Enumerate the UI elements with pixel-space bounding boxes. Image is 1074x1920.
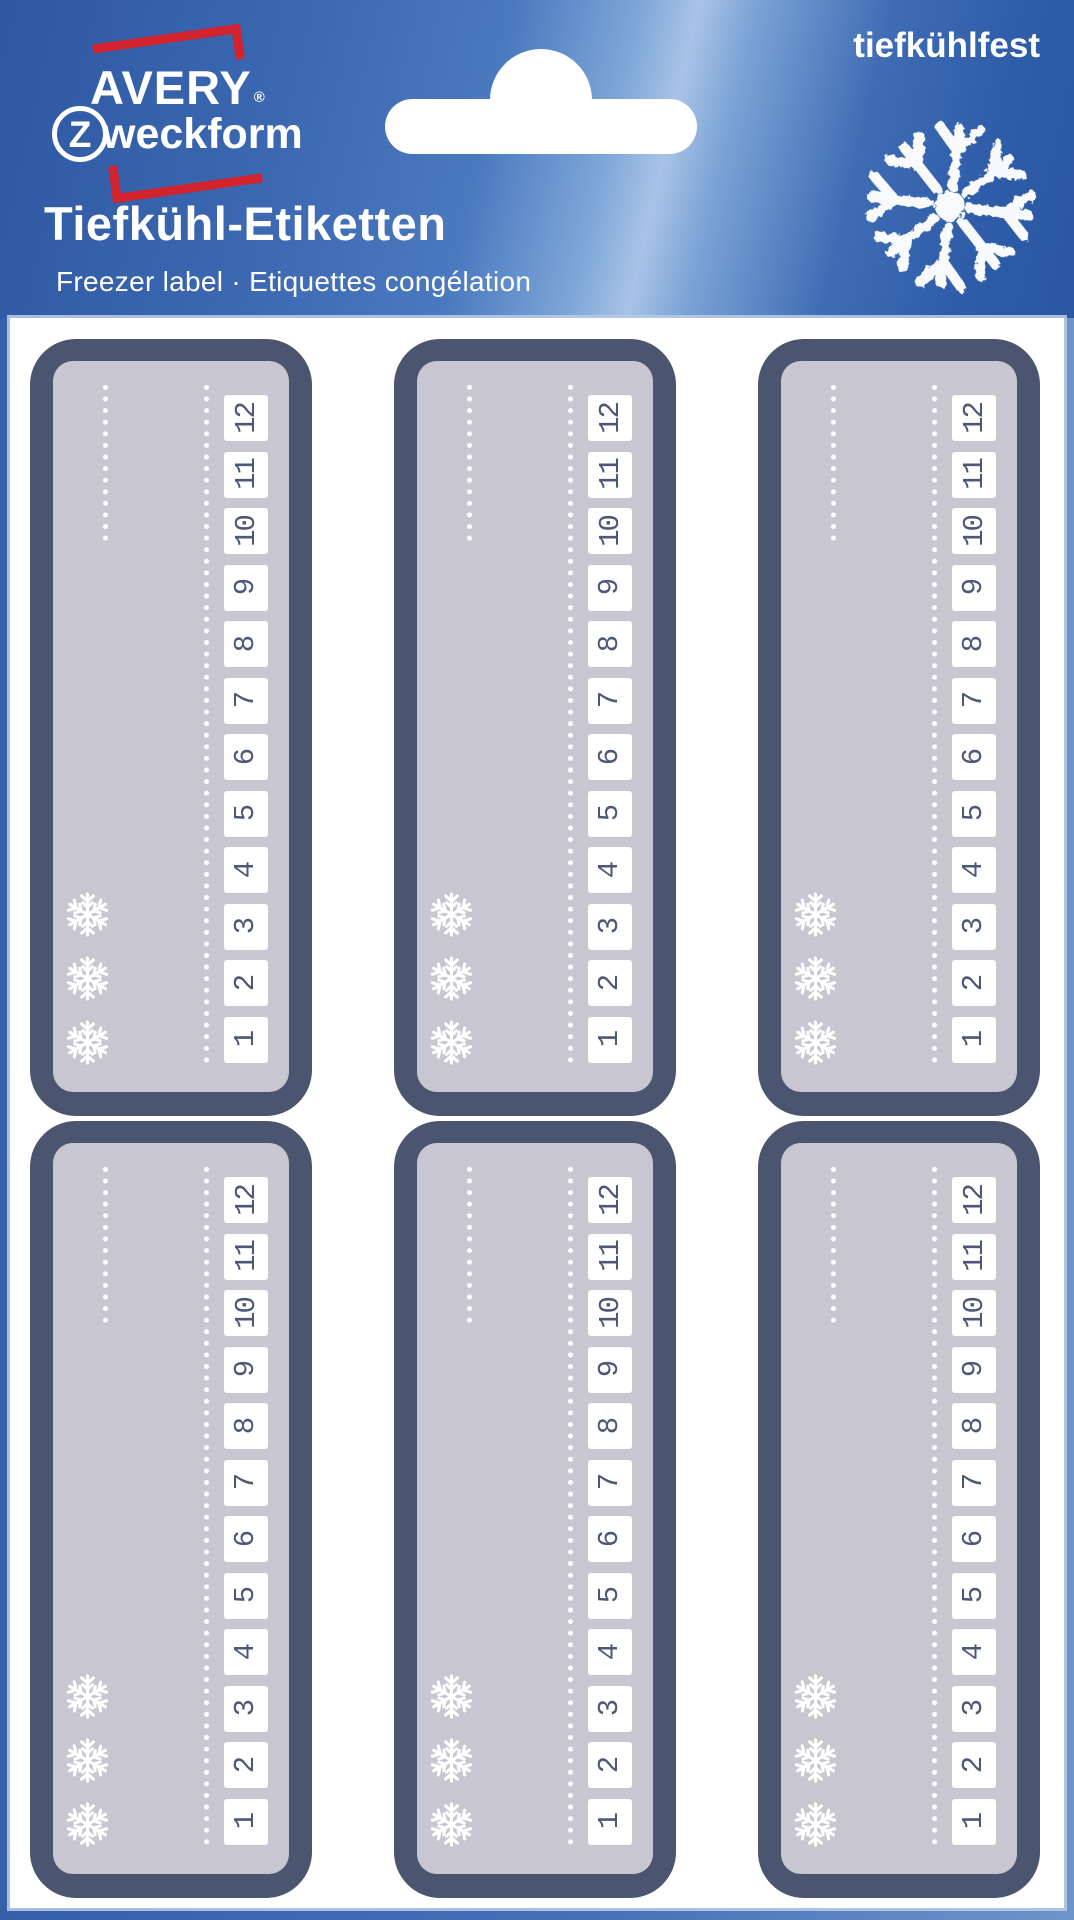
snowflake-icon [792, 1801, 839, 1848]
month-box: 11 [952, 452, 996, 498]
month-box: 3 [224, 904, 268, 950]
month-number: 8 [230, 1418, 263, 1433]
dotted-writing-line-long [568, 385, 573, 1066]
month-number: 3 [958, 1701, 991, 1716]
month-number: 2 [958, 1757, 991, 1772]
month-number: 1 [230, 1814, 263, 1829]
month-box: 8 [224, 1403, 268, 1449]
snowflake-icon [792, 1737, 839, 1784]
month-scale: 121110987654321 [224, 395, 268, 1063]
month-box: 2 [224, 960, 268, 1006]
dotted-writing-line-short [831, 385, 836, 544]
month-box: 6 [952, 1516, 996, 1562]
header-banner: AVERY® Zweckform tiefkühlfest Tiefkühl-E… [0, 0, 1074, 318]
month-scale: 121110987654321 [952, 395, 996, 1063]
month-box: 2 [952, 1742, 996, 1788]
month-box: 1 [224, 1799, 268, 1845]
month-box: 10 [224, 1290, 268, 1336]
month-box: 1 [588, 1799, 632, 1845]
month-number: 2 [230, 1757, 263, 1772]
month-box: 11 [224, 1234, 268, 1280]
month-number: 6 [594, 749, 627, 764]
month-box: 10 [952, 1290, 996, 1336]
month-box: 11 [952, 1234, 996, 1280]
month-box: 9 [952, 565, 996, 611]
month-number: 5 [594, 1588, 627, 1603]
label-sheet: 121110987654321 121110987654321 12111098… [10, 318, 1064, 1908]
snowflake-icon [428, 1019, 475, 1066]
snowflake-icon [64, 1801, 111, 1848]
month-number: 3 [958, 919, 991, 934]
dotted-writing-line-short [103, 385, 108, 544]
month-box: 12 [588, 1177, 632, 1223]
month-box: 4 [224, 1629, 268, 1675]
month-number: 12 [230, 1185, 263, 1216]
month-number: 11 [230, 1241, 263, 1272]
month-number: 1 [230, 1032, 263, 1047]
month-number: 7 [594, 693, 627, 708]
month-box: 6 [224, 1516, 268, 1562]
month-box: 7 [952, 678, 996, 724]
month-box: 10 [588, 508, 632, 554]
month-number: 9 [594, 1362, 627, 1377]
month-box: 5 [224, 791, 268, 837]
month-box: 2 [588, 960, 632, 1006]
snowflake-icon [792, 1673, 839, 1720]
month-box: 8 [588, 1403, 632, 1449]
month-number: 8 [594, 636, 627, 651]
dotted-writing-line-long [932, 1167, 937, 1848]
month-box: 3 [952, 904, 996, 950]
month-box: 1 [588, 1017, 632, 1063]
month-box: 7 [588, 678, 632, 724]
freezer-label: 121110987654321 [758, 339, 1040, 1116]
month-number: 6 [958, 1531, 991, 1546]
month-number: 7 [594, 1475, 627, 1490]
snowflake-icon [428, 891, 475, 938]
dotted-writing-line-short [467, 1167, 472, 1326]
snowflake-icon [792, 1019, 839, 1066]
month-box: 12 [952, 1177, 996, 1223]
month-number: 10 [958, 516, 991, 547]
month-number: 12 [594, 1185, 627, 1216]
month-box: 7 [952, 1460, 996, 1506]
snowflake-icon [792, 955, 839, 1002]
hang-slot-icon [385, 99, 697, 154]
snowflake-icon [792, 891, 839, 938]
month-number: 4 [958, 1644, 991, 1659]
month-box: 5 [224, 1573, 268, 1619]
product-subtitle: Freezer label · Etiquettes congélation [56, 266, 531, 298]
month-scale: 121110987654321 [224, 1177, 268, 1845]
snowflake-icon [428, 1801, 475, 1848]
month-box: 9 [224, 565, 268, 611]
month-box: 3 [952, 1686, 996, 1732]
month-number: 10 [594, 516, 627, 547]
month-number: 9 [594, 580, 627, 595]
month-box: 7 [588, 1460, 632, 1506]
registered-trademark-icon: ® [254, 89, 266, 106]
circled-z-icon: Z [52, 106, 108, 162]
month-box: 4 [952, 1629, 996, 1675]
month-box: 11 [224, 452, 268, 498]
month-number: 7 [958, 1475, 991, 1490]
month-number: 2 [958, 975, 991, 990]
month-number: 1 [958, 1814, 991, 1829]
month-box: 3 [588, 1686, 632, 1732]
month-number: 8 [958, 636, 991, 651]
month-box: 7 [224, 1460, 268, 1506]
month-number: 7 [230, 1475, 263, 1490]
month-box: 7 [224, 678, 268, 724]
month-number: 7 [230, 693, 263, 708]
logo-zweckform-wordmark: Zweckform [52, 106, 303, 162]
month-number: 2 [594, 1757, 627, 1772]
dotted-writing-line-short [467, 385, 472, 544]
month-box: 9 [952, 1347, 996, 1393]
month-number: 11 [230, 459, 263, 490]
month-box: 11 [588, 1234, 632, 1280]
month-number: 11 [594, 459, 627, 490]
month-number: 9 [230, 1362, 263, 1377]
month-number: 6 [594, 1531, 627, 1546]
month-box: 5 [588, 791, 632, 837]
month-number: 3 [594, 1701, 627, 1716]
month-box: 1 [952, 1799, 996, 1845]
month-number: 11 [958, 459, 991, 490]
month-number: 3 [230, 1701, 263, 1716]
month-scale: 121110987654321 [588, 1177, 632, 1845]
month-number: 9 [958, 580, 991, 595]
month-scale: 121110987654321 [952, 1177, 996, 1845]
month-number: 5 [958, 806, 991, 821]
month-box: 3 [588, 904, 632, 950]
month-number: 2 [230, 975, 263, 990]
dotted-writing-line-long [568, 1167, 573, 1848]
freezer-label: 121110987654321 [394, 1121, 676, 1898]
month-number: 6 [958, 749, 991, 764]
dotted-writing-line-short [103, 1167, 108, 1326]
month-box: 12 [224, 395, 268, 441]
snowflake-icon [428, 955, 475, 1002]
month-number: 8 [958, 1418, 991, 1433]
month-number: 11 [958, 1241, 991, 1272]
month-number: 4 [958, 862, 991, 877]
month-box: 8 [952, 1403, 996, 1449]
dotted-writing-line-long [204, 1167, 209, 1848]
chalk-snowflake-icon [845, 99, 1055, 312]
month-box: 9 [588, 565, 632, 611]
month-box: 6 [224, 734, 268, 780]
month-box: 10 [588, 1290, 632, 1336]
month-box: 10 [952, 508, 996, 554]
month-number: 1 [958, 1032, 991, 1047]
snowflake-icon [64, 891, 111, 938]
month-number: 8 [594, 1418, 627, 1433]
freezer-proof-claim: tiefkühlfest [853, 26, 1040, 66]
month-number: 5 [230, 1588, 263, 1603]
month-number: 10 [230, 1298, 263, 1329]
month-box: 6 [952, 734, 996, 780]
month-box: 4 [952, 847, 996, 893]
month-number: 5 [958, 1588, 991, 1603]
month-box: 5 [952, 791, 996, 837]
month-box: 9 [224, 1347, 268, 1393]
month-number: 6 [230, 749, 263, 764]
month-box: 5 [952, 1573, 996, 1619]
month-number: 6 [230, 1531, 263, 1546]
month-number: 7 [958, 693, 991, 708]
month-box: 1 [224, 1017, 268, 1063]
freezer-label: 121110987654321 [758, 1121, 1040, 1898]
logo-z-letter: Z [69, 116, 92, 153]
month-number: 9 [230, 580, 263, 595]
month-number: 2 [594, 975, 627, 990]
month-number: 5 [594, 806, 627, 821]
dotted-writing-line-long [204, 385, 209, 1066]
month-box: 3 [224, 1686, 268, 1732]
product-title: Tiefkühl-Etiketten [44, 196, 446, 251]
month-number: 12 [958, 403, 991, 434]
month-box: 8 [952, 621, 996, 667]
snowflake-icon [428, 1737, 475, 1784]
month-box: 2 [224, 1742, 268, 1788]
month-box: 4 [224, 847, 268, 893]
month-number: 4 [230, 862, 263, 877]
snowflake-icon [64, 1019, 111, 1066]
month-number: 10 [594, 1298, 627, 1329]
month-number: 4 [230, 1644, 263, 1659]
month-number: 9 [958, 1362, 991, 1377]
freezer-label: 121110987654321 [30, 1121, 312, 1898]
month-number: 12 [958, 1185, 991, 1216]
month-number: 10 [958, 1298, 991, 1329]
month-number: 1 [594, 1814, 627, 1829]
month-number: 10 [230, 516, 263, 547]
month-box: 11 [588, 452, 632, 498]
month-box: 2 [588, 1742, 632, 1788]
month-box: 9 [588, 1347, 632, 1393]
month-box: 8 [588, 621, 632, 667]
month-number: 12 [230, 403, 263, 434]
month-box: 6 [588, 734, 632, 780]
freezer-label: 121110987654321 [30, 339, 312, 1116]
month-box: 1 [952, 1017, 996, 1063]
snowflake-icon [64, 955, 111, 1002]
month-number: 12 [594, 403, 627, 434]
month-box: 6 [588, 1516, 632, 1562]
month-number: 5 [230, 806, 263, 821]
month-number: 1 [594, 1032, 627, 1047]
snowflake-icon [64, 1673, 111, 1720]
dotted-writing-line-long [932, 385, 937, 1066]
month-scale: 121110987654321 [588, 395, 632, 1063]
month-box: 10 [224, 508, 268, 554]
month-box: 12 [588, 395, 632, 441]
month-number: 4 [594, 862, 627, 877]
month-box: 5 [588, 1573, 632, 1619]
avery-zweckform-logo: AVERY® Zweckform [50, 24, 330, 200]
snowflake-icon [64, 1737, 111, 1784]
month-box: 2 [952, 960, 996, 1006]
month-box: 4 [588, 847, 632, 893]
logo-zweckform-text: weckform [102, 110, 303, 159]
month-number: 4 [594, 1644, 627, 1659]
month-box: 12 [224, 1177, 268, 1223]
dotted-writing-line-short [831, 1167, 836, 1326]
month-box: 12 [952, 395, 996, 441]
month-number: 3 [230, 919, 263, 934]
month-box: 8 [224, 621, 268, 667]
month-number: 3 [594, 919, 627, 934]
month-number: 11 [594, 1241, 627, 1272]
month-number: 8 [230, 636, 263, 651]
snowflake-icon [428, 1673, 475, 1720]
freezer-label: 121110987654321 [394, 339, 676, 1116]
month-box: 4 [588, 1629, 632, 1675]
